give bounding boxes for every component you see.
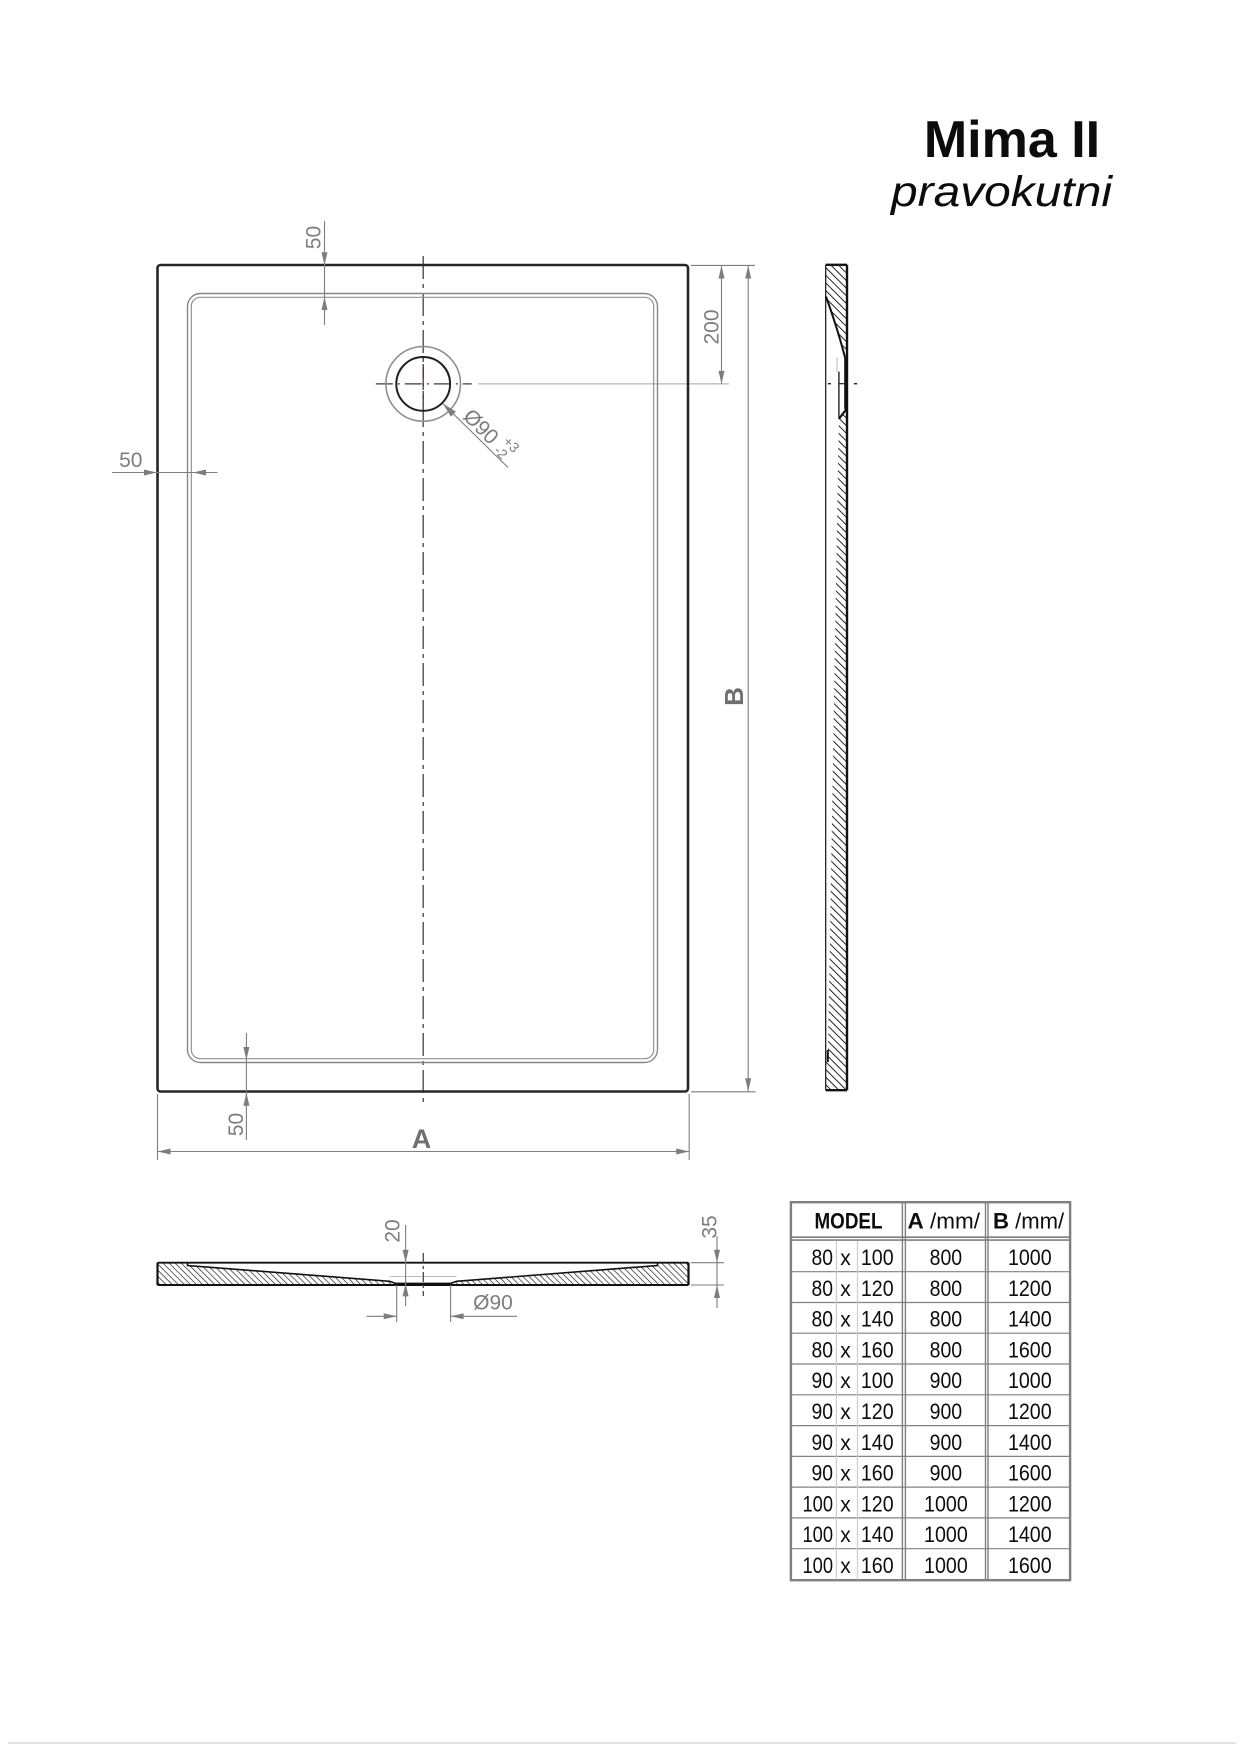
svg-text:900: 900 [930, 1461, 963, 1486]
svg-text:120: 120 [861, 1491, 894, 1516]
svg-text:80: 80 [812, 1337, 834, 1362]
svg-text:100: 100 [803, 1491, 834, 1516]
svg-text:100: 100 [861, 1368, 894, 1393]
svg-text:200: 200 [701, 309, 724, 344]
svg-text:pravokutni: pravokutni [889, 168, 1114, 216]
svg-text:A: A [412, 1124, 432, 1154]
svg-text:x: x [840, 1339, 851, 1362]
svg-text:50: 50 [225, 1113, 248, 1136]
svg-text:1200: 1200 [1008, 1276, 1052, 1301]
svg-text:50: 50 [119, 449, 142, 472]
svg-text:35: 35 [699, 1215, 722, 1238]
svg-text:Ø90: Ø90 [458, 405, 502, 449]
svg-text:160: 160 [861, 1553, 894, 1578]
svg-text:160: 160 [861, 1461, 894, 1486]
svg-text:20: 20 [382, 1219, 405, 1242]
svg-text:100: 100 [803, 1553, 834, 1578]
svg-text:80: 80 [812, 1276, 834, 1301]
svg-text:80: 80 [812, 1245, 834, 1270]
svg-text:MODEL: MODEL [815, 1209, 883, 1234]
svg-text:x: x [840, 1555, 851, 1578]
svg-text:1600: 1600 [1008, 1461, 1052, 1486]
svg-text:x: x [840, 1463, 851, 1486]
svg-text:1400: 1400 [1008, 1522, 1052, 1547]
svg-text:x: x [840, 1278, 851, 1301]
svg-text:800: 800 [930, 1337, 963, 1362]
svg-text:x: x [840, 1493, 851, 1516]
svg-text:140: 140 [861, 1430, 894, 1455]
svg-text:Mima II: Mima II [924, 111, 1100, 169]
svg-text:90: 90 [812, 1399, 834, 1424]
svg-text:1400: 1400 [1008, 1307, 1052, 1332]
svg-text:1600: 1600 [1008, 1337, 1052, 1362]
svg-text:1600: 1600 [1008, 1553, 1052, 1578]
svg-text:160: 160 [861, 1337, 894, 1362]
svg-text:x: x [840, 1524, 851, 1547]
svg-text:140: 140 [861, 1522, 894, 1547]
svg-text:1000: 1000 [924, 1553, 968, 1578]
svg-text:1200: 1200 [1008, 1491, 1052, 1516]
svg-text:90: 90 [812, 1461, 834, 1486]
svg-text:90: 90 [812, 1430, 834, 1455]
svg-text:1000: 1000 [1008, 1245, 1052, 1270]
svg-text:100: 100 [803, 1522, 834, 1547]
svg-text:50: 50 [302, 226, 325, 249]
svg-text:90: 90 [812, 1368, 834, 1393]
svg-text:900: 900 [930, 1368, 963, 1393]
svg-text:900: 900 [930, 1430, 963, 1455]
svg-text:80: 80 [812, 1307, 834, 1332]
svg-text:100: 100 [861, 1245, 894, 1270]
svg-text:x: x [840, 1432, 851, 1455]
svg-text:120: 120 [861, 1276, 894, 1301]
svg-text:1000: 1000 [924, 1491, 968, 1516]
svg-text:x: x [840, 1401, 851, 1424]
svg-text:B: B [719, 687, 749, 706]
svg-text:B /mm/: B /mm/ [993, 1209, 1065, 1234]
svg-text:A /mm/: A /mm/ [908, 1209, 981, 1234]
svg-text:x: x [840, 1247, 851, 1270]
svg-text:Ø90: Ø90 [473, 1292, 513, 1315]
svg-text:1400: 1400 [1008, 1430, 1052, 1455]
svg-text:800: 800 [930, 1307, 963, 1332]
svg-text:1000: 1000 [1008, 1368, 1052, 1393]
svg-text:x: x [840, 1309, 851, 1332]
svg-text:120: 120 [861, 1399, 894, 1424]
svg-text:140: 140 [861, 1307, 894, 1332]
svg-text:1000: 1000 [924, 1522, 968, 1547]
svg-text:800: 800 [930, 1276, 963, 1301]
svg-text:800: 800 [930, 1245, 963, 1270]
svg-text:900: 900 [930, 1399, 963, 1424]
svg-text:1200: 1200 [1008, 1399, 1052, 1424]
svg-text:x: x [840, 1370, 851, 1393]
